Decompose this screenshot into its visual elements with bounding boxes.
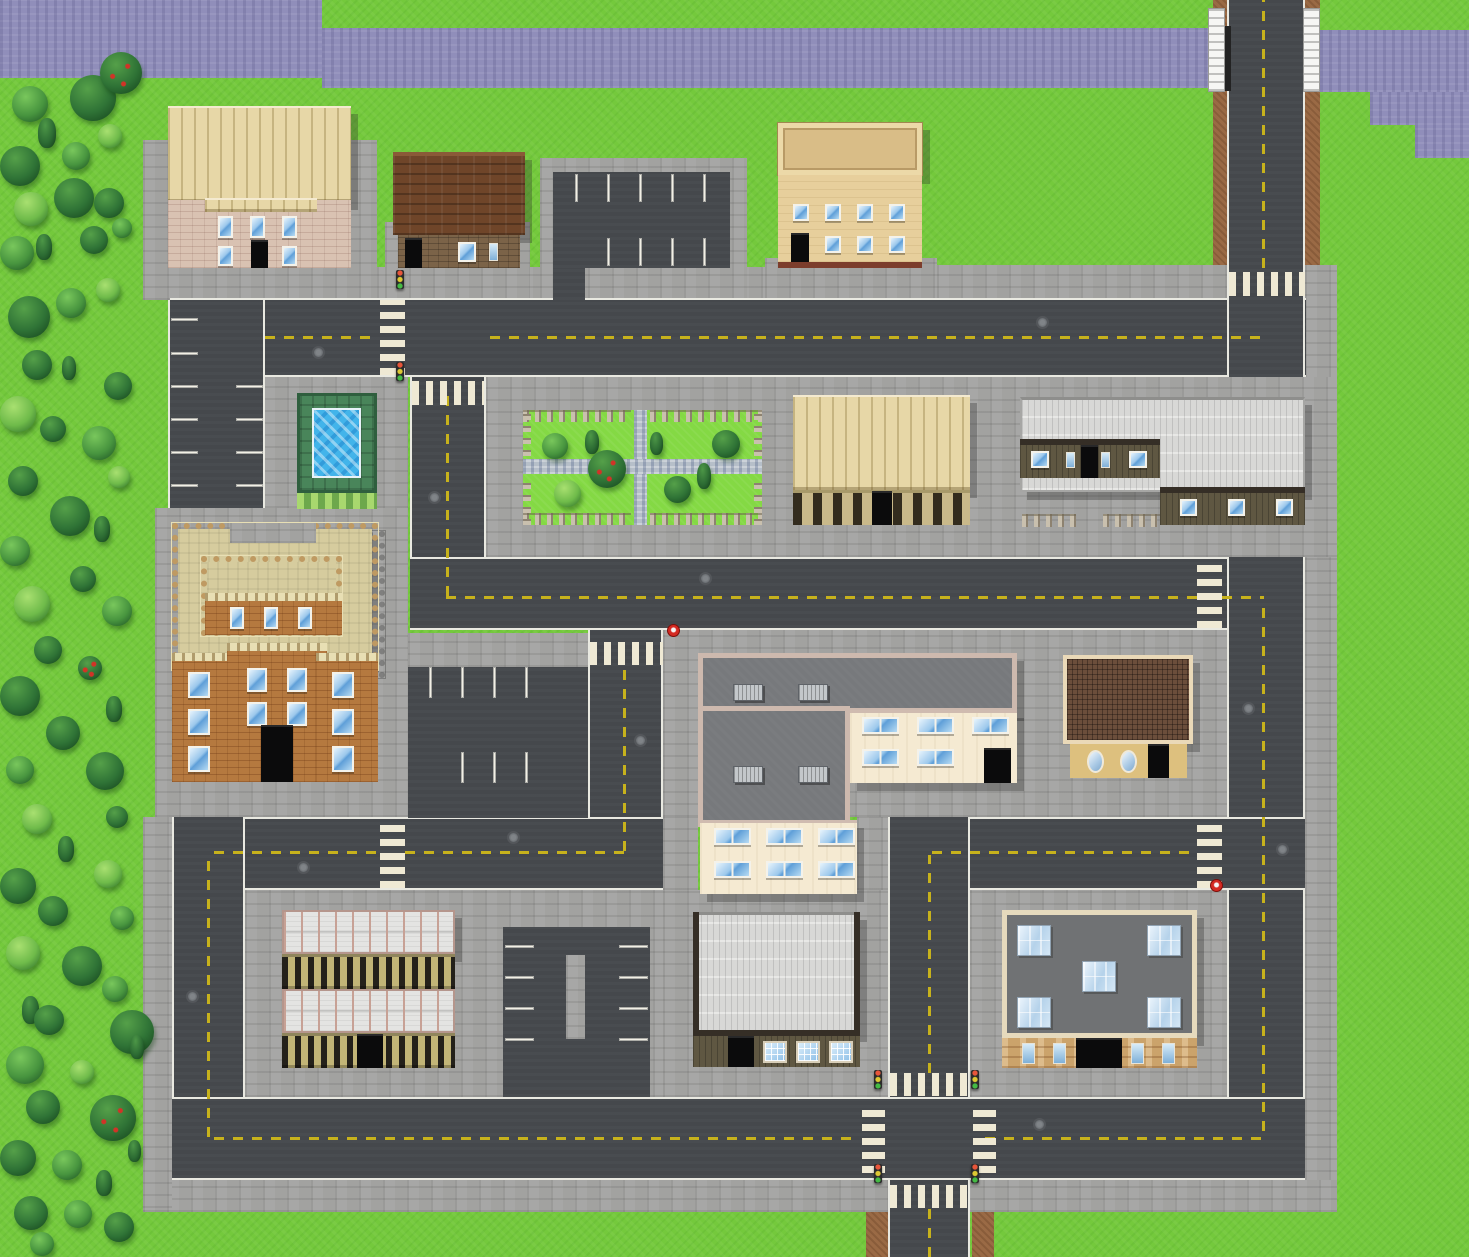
parking-stall-line — [619, 1007, 648, 1010]
parking-stall-line — [525, 667, 528, 698]
warehouse-nw-window — [218, 216, 233, 238]
road-shoulder-dirt — [866, 1208, 888, 1257]
hotel-window — [332, 746, 354, 772]
crosswalk — [973, 1105, 996, 1173]
depot-east-fence — [1022, 514, 1076, 527]
manhole-cover — [1036, 316, 1049, 329]
tree — [96, 278, 120, 302]
tree — [8, 296, 50, 338]
factory-sw-glass — [282, 910, 455, 954]
lane-line — [214, 851, 380, 854]
tree — [70, 1060, 94, 1084]
depot-east-fence — [1103, 514, 1160, 527]
lane-line — [405, 851, 624, 854]
lane-line — [932, 851, 1197, 854]
house-brown-window — [458, 242, 476, 262]
parking-stall-line — [619, 1038, 648, 1041]
office-complex-vent — [733, 766, 763, 783]
tree — [0, 396, 36, 432]
tree — [62, 356, 76, 380]
workshop-se-window — [1053, 1043, 1066, 1064]
tree — [50, 496, 90, 536]
road-middle — [410, 557, 1305, 630]
tree — [100, 52, 142, 94]
house-brown-roof — [393, 152, 525, 235]
park-fence — [754, 477, 762, 525]
hotel-crenel — [227, 643, 327, 651]
tree — [36, 234, 52, 260]
sidewalk-block — [143, 1180, 1337, 1212]
warehouse-south-post — [854, 912, 860, 1034]
hotel-door[interactable] — [261, 725, 293, 782]
tree — [62, 946, 102, 986]
warehouse-south-post — [693, 912, 699, 1034]
crosswalk — [1229, 272, 1305, 296]
parking-stall-line — [619, 976, 648, 979]
tree — [102, 976, 128, 1002]
office-north-window — [825, 204, 841, 221]
hotel-window — [230, 607, 244, 629]
warehouse-nw-window — [250, 216, 265, 238]
tree — [130, 1035, 144, 1059]
park-fence — [650, 513, 762, 525]
manhole-cover — [1242, 702, 1255, 715]
office-complex-window — [818, 828, 855, 845]
traffic-light — [971, 1070, 979, 1089]
parking-stall-line — [171, 484, 198, 487]
warehouse-nw-roof — [168, 106, 351, 202]
factory-sw-wall — [282, 954, 455, 989]
hotel-window — [188, 672, 210, 698]
lane-line — [265, 336, 375, 339]
tree — [90, 1095, 136, 1141]
tree — [0, 676, 40, 716]
park-fence — [523, 513, 631, 525]
tree — [78, 656, 102, 680]
office-north-window — [857, 204, 873, 221]
lane-line — [928, 855, 931, 1073]
park-path — [523, 459, 762, 474]
road-north-highway — [1227, 0, 1305, 377]
tree — [104, 372, 132, 400]
manhole-cover — [699, 572, 712, 585]
house-brown-grid-window — [1087, 750, 1104, 773]
parking-lot-central — [408, 667, 588, 818]
parking-stall-line — [607, 174, 610, 202]
park-tree — [697, 463, 711, 489]
tree — [0, 868, 36, 904]
tree — [108, 466, 130, 488]
tree — [0, 146, 40, 186]
traffic-light — [971, 1164, 979, 1183]
tree — [6, 756, 34, 784]
warehouse-nw-window — [282, 216, 297, 238]
tree — [104, 1212, 134, 1242]
tree — [80, 226, 108, 254]
river — [1370, 92, 1469, 125]
park-tree — [554, 480, 581, 507]
tree — [40, 416, 66, 442]
office-complex-window — [862, 717, 899, 734]
tree — [58, 836, 74, 862]
parking-stall-line — [171, 451, 198, 454]
parking-stall-line — [461, 667, 464, 698]
crosswalk — [412, 381, 484, 405]
parking-lot-northwest — [168, 300, 265, 508]
house-brown-grid-door[interactable] — [1148, 744, 1169, 778]
parking-stall-line — [671, 238, 674, 266]
manhole-cover — [297, 861, 310, 874]
parking-stall-line — [525, 752, 528, 783]
tree — [22, 804, 52, 834]
office-north-window — [857, 236, 873, 253]
hotel-crenel — [316, 653, 378, 661]
office-north-window — [825, 236, 841, 253]
river — [1415, 125, 1469, 158]
manhole-cover — [1276, 843, 1289, 856]
warehouse-nw-door[interactable] — [251, 240, 268, 268]
workshop-se-skylight — [1017, 997, 1051, 1028]
tree — [62, 142, 90, 170]
tree — [112, 218, 132, 238]
factory-sw-door[interactable] — [357, 1034, 383, 1068]
event-marker[interactable] — [1210, 879, 1223, 892]
hotel-window — [332, 709, 354, 735]
parking-stall-line — [236, 418, 263, 421]
tree — [86, 752, 124, 790]
warehouse-south-roof — [693, 912, 860, 1034]
tree — [56, 288, 86, 318]
parking-stall-line — [171, 352, 198, 355]
office-north-window — [793, 204, 809, 221]
lane-line — [1262, 0, 1265, 268]
sidewalk-block — [143, 817, 172, 1208]
tree — [128, 1140, 141, 1162]
pool-mat — [297, 493, 377, 509]
parking-stall-line — [493, 752, 496, 783]
depot-east-window — [1228, 499, 1245, 516]
lane-line — [1222, 596, 1264, 599]
hotel-crenel — [172, 653, 234, 661]
office-complex-window — [972, 717, 1009, 734]
river — [322, 28, 1208, 88]
bridge-post — [1225, 26, 1231, 91]
hotel-window — [188, 709, 210, 735]
park-tree — [542, 433, 568, 459]
parking-stall-line — [703, 238, 706, 266]
parking-stall-line — [429, 667, 432, 698]
workshop-se-skylight — [1017, 925, 1051, 956]
office-complex-window — [714, 861, 751, 878]
hotel-window — [287, 668, 307, 692]
tree — [0, 536, 30, 566]
tree — [106, 806, 128, 828]
tree — [38, 896, 68, 926]
workshop-se-skylight — [1147, 925, 1181, 956]
warehouse-south-window — [763, 1041, 787, 1063]
park-fence — [523, 410, 631, 422]
bridge-railing — [1208, 8, 1225, 92]
parking-stall-line — [236, 484, 263, 487]
parking-stall-line — [619, 945, 648, 948]
workshop-se-window — [1162, 1043, 1175, 1064]
office-complex-window — [862, 749, 899, 766]
workshop-se-skylight — [1082, 961, 1116, 992]
traffic-light — [874, 1070, 882, 1089]
warehouse-south-window — [829, 1041, 853, 1063]
parking-stall-line — [703, 174, 706, 202]
lane-line — [490, 336, 1262, 339]
parking-stall-line — [171, 318, 198, 321]
parking-stall-line — [607, 238, 610, 266]
bridge-railing — [1303, 8, 1320, 92]
traffic-light — [874, 1164, 882, 1183]
office-north-window — [889, 236, 905, 253]
lane-line — [446, 596, 1197, 599]
tree — [54, 178, 94, 218]
depot-east-window — [1101, 452, 1110, 468]
parking-stall-line — [461, 752, 464, 783]
house-brown-grid-window — [1120, 750, 1137, 773]
park-tree — [588, 450, 626, 488]
office-complex-window — [766, 861, 803, 878]
office-complex-window — [714, 828, 751, 845]
parking-stall-line — [639, 238, 642, 266]
sidewalk-block — [663, 817, 698, 890]
park-tree — [585, 430, 599, 454]
depot-east-window — [1031, 451, 1049, 468]
traffic-light — [396, 270, 404, 289]
crosswalk — [890, 1073, 968, 1096]
parking-stall-line — [171, 385, 198, 388]
lane-line — [446, 390, 449, 596]
market-hall-door[interactable] — [872, 491, 892, 525]
crosswalk — [862, 1105, 885, 1173]
tree — [0, 236, 34, 270]
manhole-cover — [428, 491, 441, 504]
tree — [96, 1170, 112, 1196]
parking-driveway — [553, 268, 585, 300]
crosswalk — [380, 819, 405, 888]
parking-stall-line — [505, 1038, 534, 1041]
park-fence — [523, 477, 531, 525]
park-tree — [650, 432, 663, 455]
road-shoulder-dirt — [972, 1208, 994, 1257]
parking-stall-line — [505, 976, 534, 979]
crosswalk — [1197, 559, 1222, 628]
hotel-window — [188, 746, 210, 772]
depot-east-door[interactable] — [1081, 445, 1098, 478]
office-north-door[interactable] — [791, 233, 809, 262]
workshop-se-window — [1131, 1043, 1144, 1064]
parking-stall-line — [505, 1007, 534, 1010]
tree — [94, 188, 124, 218]
hotel-window — [287, 702, 307, 726]
manhole-cover — [312, 346, 325, 359]
tree — [6, 936, 40, 970]
crosswalk — [590, 642, 663, 665]
factory-sw-glass — [282, 989, 455, 1033]
tree — [70, 566, 96, 592]
tree — [102, 596, 132, 626]
parking-island — [566, 955, 585, 1039]
office-complex-door[interactable] — [984, 748, 1011, 783]
house-brown-window — [489, 243, 498, 261]
workshop-se-window — [1022, 1043, 1035, 1064]
office-complex-window — [818, 861, 855, 878]
park-fence — [523, 410, 531, 456]
warehouse-south-door[interactable] — [728, 1036, 754, 1067]
warehouse-nw-gable — [205, 198, 317, 212]
tree — [26, 1090, 60, 1124]
traffic-light — [396, 362, 404, 381]
workshop-se-garage-door[interactable] — [1076, 1038, 1122, 1068]
office-complex-window — [917, 749, 954, 766]
office-north-window — [889, 204, 905, 221]
tree — [64, 1200, 92, 1228]
tree — [6, 1046, 44, 1084]
sidewalk-block — [857, 817, 890, 890]
hotel-courtyard-notch — [230, 523, 316, 543]
river — [1320, 30, 1469, 92]
game-map[interactable] — [0, 0, 1469, 1257]
tree — [52, 1150, 82, 1180]
parking-stall-line — [639, 174, 642, 202]
hotel-window — [264, 607, 278, 629]
office-north-roof — [778, 123, 922, 175]
lane-line — [1262, 599, 1265, 1131]
sidewalk-block — [408, 633, 588, 667]
parking-stall-line — [505, 945, 534, 948]
warehouse-south-window — [796, 1041, 820, 1063]
office-complex-vent — [798, 684, 828, 701]
tree — [30, 1232, 54, 1256]
hotel-window — [247, 702, 267, 726]
parking-stall-line — [236, 385, 263, 388]
river — [0, 0, 322, 78]
tree — [94, 516, 110, 542]
tree — [22, 350, 52, 380]
tree — [98, 124, 122, 148]
office-north-base — [778, 262, 922, 268]
manhole-cover — [634, 734, 647, 747]
office-complex-window — [766, 828, 803, 845]
crosswalk — [1197, 819, 1222, 888]
park-tree — [712, 430, 740, 458]
hotel-window — [332, 672, 354, 698]
lane-line — [928, 1208, 931, 1257]
park-fence — [754, 410, 762, 456]
hotel-crenel — [205, 593, 342, 601]
tree — [14, 586, 50, 622]
tree — [8, 466, 38, 496]
lane-line — [623, 666, 626, 851]
manhole-cover — [1033, 1118, 1046, 1131]
parking-stall-line — [171, 418, 198, 421]
parking-stall-line — [671, 174, 674, 202]
tree — [38, 118, 56, 148]
tree — [34, 1005, 64, 1035]
house-brown-grid-roof — [1063, 655, 1193, 744]
depot-east-window — [1129, 451, 1147, 468]
lane-line — [207, 855, 210, 1137]
parking-stall-line — [575, 174, 578, 202]
parking-stall-line — [236, 451, 263, 454]
warehouse-nw-window — [218, 246, 233, 266]
tree — [14, 192, 48, 226]
office-complex-window — [917, 717, 954, 734]
manhole-cover — [507, 831, 520, 844]
tree — [82, 426, 116, 460]
parking-stall-line — [493, 667, 496, 698]
market-hall-roof — [793, 395, 970, 490]
crosswalk — [890, 1185, 968, 1208]
tree — [94, 860, 122, 888]
tree — [14, 1196, 48, 1230]
hotel-window — [247, 668, 267, 692]
tree — [12, 86, 48, 122]
hotel-window — [298, 607, 312, 629]
office-complex-vent — [798, 766, 828, 783]
warehouse-nw-window — [282, 246, 297, 266]
house-brown-door[interactable] — [405, 238, 422, 268]
park-tree — [664, 476, 691, 503]
workshop-se-skylight — [1147, 997, 1181, 1028]
tree — [110, 906, 134, 930]
pool-water[interactable] — [312, 408, 361, 478]
depot-east-window — [1066, 452, 1075, 468]
tree — [46, 716, 80, 750]
lane-line — [214, 1137, 854, 1140]
lane-line — [985, 1137, 1262, 1140]
depot-east-window — [1276, 499, 1293, 516]
tree — [0, 1140, 36, 1176]
tree — [34, 636, 62, 664]
office-complex-roof — [698, 653, 1017, 713]
event-marker[interactable] — [667, 624, 680, 637]
tree — [106, 696, 122, 722]
office-complex-vent — [733, 684, 763, 701]
manhole-cover — [186, 990, 199, 1003]
depot-east-window — [1180, 499, 1197, 516]
park-fence — [650, 410, 762, 422]
